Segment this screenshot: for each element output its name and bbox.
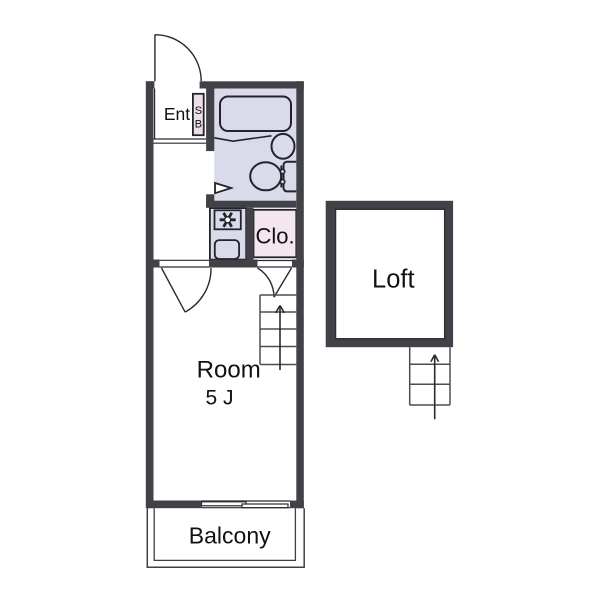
svg-text:5 J: 5 J [205, 387, 233, 410]
svg-text:Loft: Loft [372, 266, 415, 294]
svg-text:B: B [195, 119, 202, 131]
svg-text:S: S [195, 105, 202, 117]
svg-text:Room: Room [197, 356, 261, 383]
svg-text:Clo.: Clo. [256, 224, 295, 249]
svg-text:Balcony: Balcony [189, 522, 271, 548]
svg-text:Ent: Ent [164, 104, 190, 124]
